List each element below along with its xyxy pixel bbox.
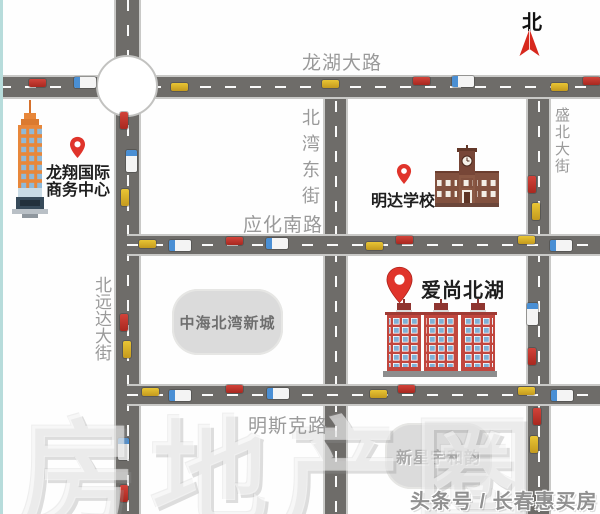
vehicle-yellow xyxy=(370,390,387,398)
vehicle-yellow xyxy=(322,80,339,88)
vehicle-red xyxy=(583,77,600,85)
road-label-shengbei: 盛北大街 xyxy=(551,107,572,175)
vehicle-truck xyxy=(126,150,137,172)
longxiang-line2: 商务中心 xyxy=(46,182,110,199)
school-building-icon xyxy=(435,145,499,207)
poi-label-mingda: 明达学校 xyxy=(371,187,435,211)
vehicle-yellow xyxy=(121,189,129,206)
office-building-icon xyxy=(12,100,48,220)
vehicle-red xyxy=(226,385,243,393)
map-canvas: 中海北湾新城 新星宇和韵 房地产圈 xyxy=(0,0,600,514)
vehicle-red xyxy=(528,348,536,365)
vehicle-yellow xyxy=(123,341,131,358)
vehicle-red xyxy=(398,385,415,393)
vehicle-yellow xyxy=(551,83,568,91)
vehicle-truck xyxy=(551,390,573,401)
vehicle-red xyxy=(120,485,128,502)
vehicle-yellow xyxy=(518,236,535,244)
vehicle-truck xyxy=(452,76,474,87)
poi-label-longxiang: 龙翔国际 商务中心 xyxy=(46,165,110,199)
longxiang-line1: 龙翔国际 xyxy=(46,165,110,182)
map-pin-icon xyxy=(385,266,414,304)
road-label-longhu: 龙湖大路 xyxy=(302,48,382,75)
vehicle-red xyxy=(533,408,541,425)
apartment-building-icon xyxy=(383,299,497,379)
zhonghai-label: 中海北湾新城 xyxy=(179,312,275,333)
vehicle-truck xyxy=(74,77,96,88)
vehicle-yellow xyxy=(142,388,159,396)
vehicle-red xyxy=(226,237,243,245)
vehicle-truck xyxy=(527,303,538,325)
vehicle-yellow xyxy=(530,436,538,453)
map-pin-icon xyxy=(396,163,412,185)
left-edge-line xyxy=(0,0,3,514)
vehicle-truck xyxy=(169,240,191,251)
road-label-minsk: 明斯克路 xyxy=(248,411,328,438)
poi-xinxingyu-area: 新星宇和韵 xyxy=(385,423,492,489)
vehicle-red xyxy=(120,112,128,129)
vehicle-red xyxy=(120,314,128,331)
poi-zhonghai-beiwan-area: 中海北湾新城 xyxy=(172,289,283,355)
vehicle-red xyxy=(29,79,46,87)
poi-label-aishang: 爱尚北湖 xyxy=(421,274,505,303)
vehicle-truck xyxy=(266,238,288,249)
road-label-beiwan: 北湾东街 xyxy=(297,108,323,212)
xinxingyu-label: 新星宇和韵 xyxy=(396,444,481,468)
vehicle-red xyxy=(396,236,413,244)
map-pin-icon xyxy=(69,136,86,159)
vehicle-yellow xyxy=(518,387,535,395)
vehicle-truck xyxy=(550,240,572,251)
vehicle-yellow xyxy=(171,83,188,91)
vehicle-red xyxy=(528,176,536,193)
vehicle-truck xyxy=(169,390,191,401)
vehicle-yellow xyxy=(366,242,383,250)
vehicle-yellow xyxy=(139,240,156,248)
vehicle-red xyxy=(413,77,430,85)
vehicle-truck xyxy=(267,388,289,399)
north-arrow-icon xyxy=(516,28,543,58)
vehicle-truck xyxy=(118,438,129,460)
vehicle-yellow xyxy=(532,203,540,220)
credit-watermark: 头条号 / 长春惠买房 xyxy=(410,485,598,514)
road-label-yuanda: 北远达大街 xyxy=(89,276,114,361)
road-label-yinghua: 应化南路 xyxy=(243,210,323,237)
